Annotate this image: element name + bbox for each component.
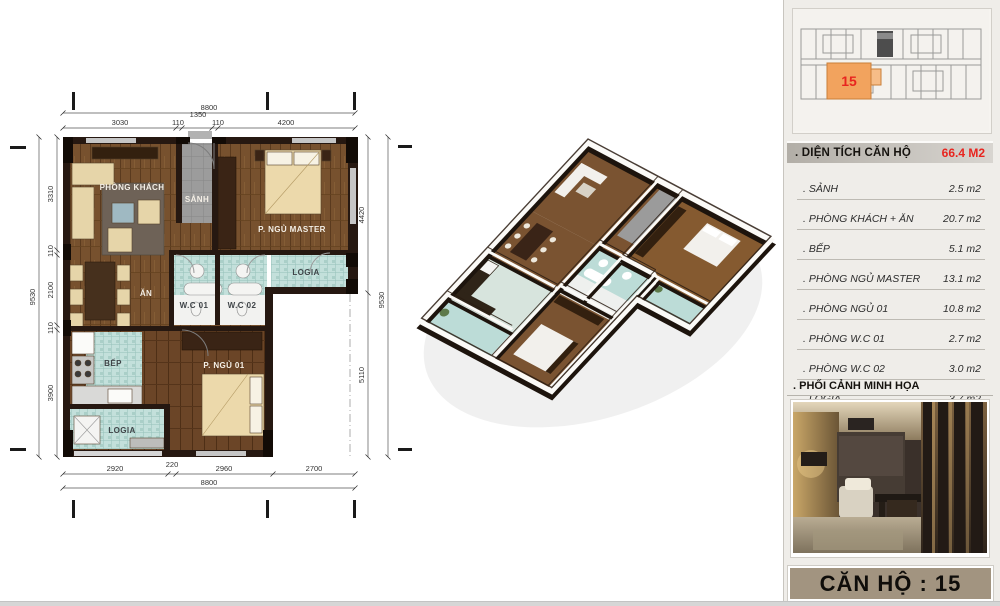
nightstand [255,150,264,161]
master-wardrobe [218,157,236,249]
info-sidebar: 15 . DIỆN TÍCH CĂN HỘ 66.4 M2 . SẢNH 2.5… [783,0,1000,606]
dim-top-2: 1350 [190,110,207,119]
perspective-header: . PHỐI CẢNH MINH HỌA [787,377,993,396]
room-hall-floor [182,143,212,223]
dining-table [85,262,115,320]
area-header-value: 66.4 M2 [942,146,985,160]
dim-top-3: 110 [212,118,224,127]
label-wc1: W.C 01 [180,301,209,310]
label-hall: SẢNH [185,195,209,204]
logia-shelf [130,438,164,448]
dim-left-total: 9530 [28,289,37,306]
dim-left-4: 3900 [46,385,55,402]
dim-left-0: 3310 [46,186,55,203]
room-area-row: . PHÒNG NGỦ 01 10.8 m2 [797,290,985,320]
tv-console [92,147,158,159]
dim-left-2: 2100 [46,282,55,299]
room-area-row: . BẾP 5.1 m2 [797,230,985,260]
area-header-label: . DIỆN TÍCH CĂN HỘ [795,147,911,159]
dim-top-4: 4200 [278,118,295,127]
interior-photo [793,402,987,553]
dim-top-1: 110 [172,118,184,127]
floor-plan-3d [398,108,783,453]
label-master: P. NGỦ MASTER [258,225,326,234]
dim-top-0: 3030 [112,118,129,127]
armchair [138,200,160,224]
label-dining: ĂN [140,289,152,298]
unit-15-number: 15 [841,73,857,89]
building-key-plan: 15 [793,9,989,131]
dim-bot-1: 220 [166,460,179,469]
unit-number-bar: CĂN HỘ : 15 [788,566,993,601]
label-logia-bottom: LOGIA [108,426,135,435]
dim-left-3: 110 [46,322,55,334]
sofa [72,187,94,239]
dim-bot-total: 8800 [201,478,218,487]
area-header-bar: . DIỆN TÍCH CĂN HỘ 66.4 M2 [787,141,993,163]
coffee-table [112,203,134,223]
floor-plan-2d: PHÒNG KHÁCH SẢNH P. NGỦ MASTER ĂN W.C 01… [0,0,430,606]
label-living: PHÒNG KHÁCH [100,183,165,192]
room-area-row: . SẢNH 2.5 m2 [797,170,985,200]
dim-bot-2: 2960 [216,464,233,473]
label-logia-mid: LOGIA [292,268,319,277]
nightstand [322,150,331,161]
room-area-row: . PHÒNG W.C 02 3.0 m2 [797,350,985,380]
bedroom1-wardrobe [182,332,262,350]
bottom-strip [0,601,1000,606]
room-area-row: . PHÒNG W.C 01 2.7 m2 [797,320,985,350]
dim-right-0: 4420 [357,207,366,224]
label-kitchen: BẾP [104,358,122,368]
dim-right-total: 9530 [377,292,386,309]
room-area-list: . SẢNH 2.5 m2 . PHÒNG KHÁCH + ĂN 20.7 m2… [797,170,985,410]
dim-bot-0: 2920 [107,464,124,473]
building-key-plan-card: 15 [792,8,992,134]
label-bedroom1: P. NGỦ 01 [203,361,244,370]
washing-machine [74,416,100,444]
armchair [108,228,132,252]
dim-left-1: 110 [46,245,55,257]
dim-right-1: 5110 [357,367,366,383]
room-area-row: . PHÒNG NGỦ MASTER 13.1 m2 [797,260,985,290]
room-area-row: . PHÒNG KHÁCH + ĂN 20.7 m2 [797,200,985,230]
label-wc2: W.C 02 [228,301,257,310]
perspective-photo-card [790,399,990,558]
dim-bot-3: 2700 [306,464,323,473]
sofa [72,163,114,185]
